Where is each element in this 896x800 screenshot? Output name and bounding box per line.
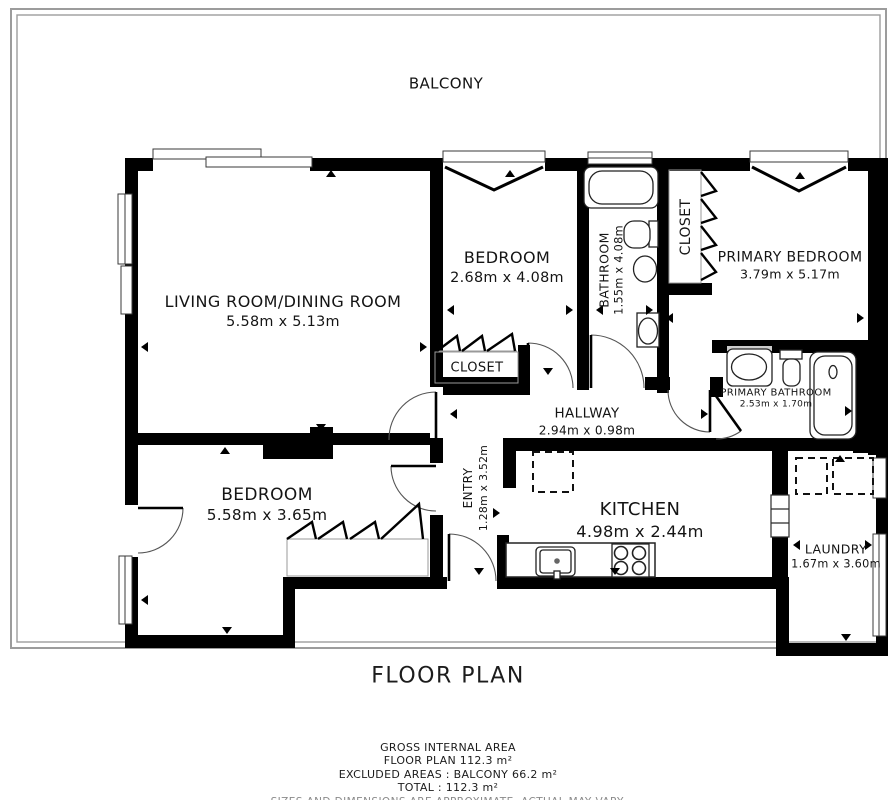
door-arc <box>391 466 436 511</box>
burner <box>615 547 628 560</box>
laundry-door <box>771 495 789 537</box>
burner <box>633 547 646 560</box>
living-window <box>121 266 132 314</box>
room-label-closet-mid: CLOSET <box>451 361 504 378</box>
faucet <box>554 558 560 564</box>
page-title: FLOOR PLAN <box>371 664 525 689</box>
appliance <box>796 458 827 494</box>
column <box>533 452 573 492</box>
burner <box>633 562 646 575</box>
room-label-bedroom-bottom: BEDROOM 5.58m x 3.65m <box>207 484 328 526</box>
dashed-boxes <box>533 452 873 494</box>
door-arc <box>138 508 183 553</box>
sliding-door-panel <box>206 157 312 167</box>
total-area: TOTAL : 112.3 m² <box>271 782 626 794</box>
toilet <box>783 359 800 386</box>
bifold-door <box>437 334 515 351</box>
laundry-window <box>873 458 886 498</box>
room-label-primary-bedroom: PRIMARY BEDROOM 3.79m x 5.17m <box>718 249 863 284</box>
french-door-backing <box>443 151 545 162</box>
drain <box>829 366 837 379</box>
bifold-door <box>701 172 716 280</box>
room-label-closet-top: CLOSET <box>677 199 695 256</box>
french-door-backing <box>750 151 848 162</box>
room-label-entry: ENTRY 1.28m x 3.52m <box>461 445 491 531</box>
room-label-balcony: BALCONY <box>409 74 483 94</box>
room-label-kitchen: KITCHEN 4.98m x 2.44m <box>576 498 703 542</box>
door-arc <box>528 343 573 388</box>
toilet <box>634 256 657 282</box>
area-summary: GROSS INTERNAL AREA FLOOR PLAN 112.3 m² … <box>271 742 626 800</box>
floor-plan-area: FLOOR PLAN 112.3 m² <box>271 755 626 767</box>
floor-plan-page: BALCONY LIVING ROOM/DINING ROOM 5.58m x … <box>0 0 896 800</box>
area-heading: GROSS INTERNAL AREA <box>271 742 626 754</box>
room-label-bedroom-top: BEDROOM 2.68m x 4.08m <box>450 248 564 288</box>
room-label-bathroom: BATHROOM 1.55m x 4.08m <box>597 225 628 315</box>
room-label-living: LIVING ROOM/DINING ROOM 5.58m x 5.13m <box>165 292 402 332</box>
room-label-hallway: HALLWAY 2.94m x 0.98m <box>539 405 636 438</box>
room-label-laundry: LAUNDRY 1.67m x 3.60m <box>791 542 881 573</box>
door-arc <box>449 534 496 581</box>
excluded-areas: EXCLUDED AREAS : BALCONY 66.2 m² <box>271 769 626 781</box>
room-label-primary-bathroom: PRIMARY BATHROOM 2.53m x 1.70m <box>720 387 831 412</box>
door-arc <box>591 335 644 388</box>
toilet <box>624 221 650 248</box>
toilet-tank <box>780 350 802 359</box>
appliance <box>833 458 873 494</box>
door-arc <box>389 392 436 440</box>
